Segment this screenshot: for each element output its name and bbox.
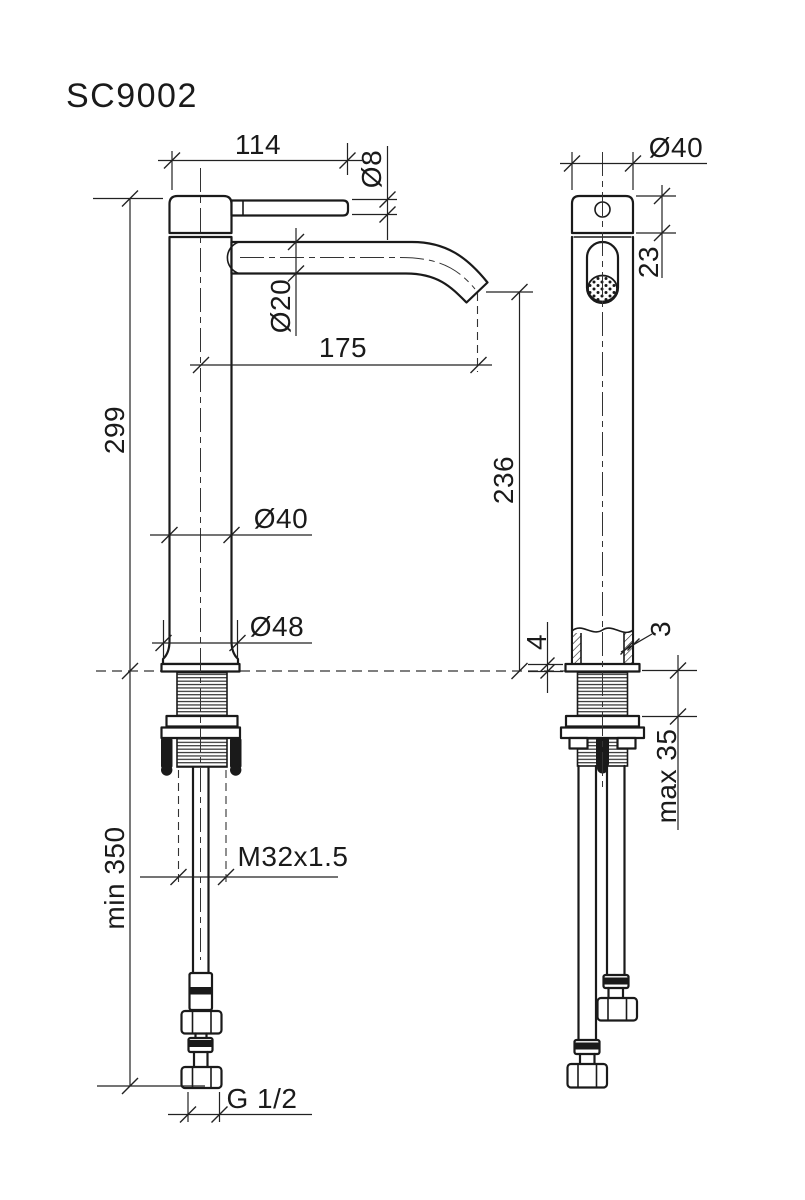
bolt-head-left (570, 738, 588, 749)
dim-connection-thread-label: G 1/2 (227, 1083, 298, 1114)
dim-body-diameter-front-label: Ø40 (254, 503, 308, 534)
bolt-head-right (618, 738, 636, 749)
wall-section-left (573, 633, 581, 664)
page-title: SC9002 (66, 77, 198, 115)
faucet-dimension-drawing: SC9002 (0, 0, 805, 1200)
dim-mounting-thread-label: M32x1.5 (238, 841, 349, 872)
dim-max-deck-thickness-label: max 35 (651, 729, 682, 824)
paper-background (0, 0, 805, 1200)
dim-top-section-height-value: 23 (633, 246, 664, 278)
dim-handle-diameter-label: Ø8 (356, 150, 387, 188)
handle-lever (232, 201, 349, 216)
dim-body-height-label: 299 (99, 406, 130, 454)
lower-thread (177, 738, 227, 767)
dim-body-diameter-side-label: Ø40 (649, 132, 703, 163)
dim-handle-length-label: 114 (235, 129, 281, 160)
dim-outlet-height-label: 236 (488, 456, 519, 504)
dim-spout-reach-label: 175 (319, 332, 367, 363)
technical-drawing-page: SC9002 (0, 0, 805, 1200)
dim-base-plate-height-label: 4 (521, 634, 552, 650)
dim-spout-diameter-label: Ø20 (265, 279, 296, 333)
dim-min-hose-length-label: min 350 (99, 826, 130, 929)
dim-wall-thickness-label: 3 (645, 621, 676, 637)
washer (167, 716, 238, 727)
mounting-shank-thread (177, 673, 227, 716)
dim-base-diameter-label: Ø48 (250, 611, 304, 642)
